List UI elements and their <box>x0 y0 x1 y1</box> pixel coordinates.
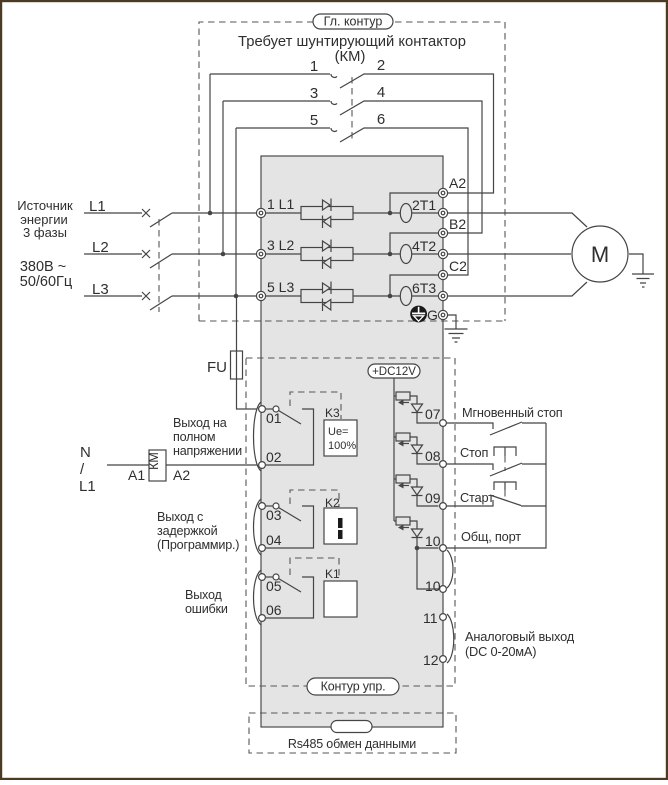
svg-text:2T1: 2T1 <box>412 197 436 213</box>
svg-text:2: 2 <box>377 57 385 74</box>
svg-text:Стоп: Стоп <box>460 445 488 460</box>
svg-text:3: 3 <box>310 85 318 102</box>
svg-text:напряжении: напряжении <box>173 444 242 458</box>
svg-text:Гл. контур: Гл. контур <box>324 15 383 29</box>
svg-text:09: 09 <box>425 490 441 506</box>
svg-text:Требует шунтирующий контактор: Требует шунтирующий контактор <box>238 34 466 50</box>
svg-text:+DC12V: +DC12V <box>372 366 416 378</box>
svg-text:02: 02 <box>266 449 282 465</box>
svg-text:Старт: Старт <box>460 490 494 505</box>
svg-text:(КМ): (КМ) <box>335 49 366 65</box>
svg-text:3 фазы: 3 фазы <box>23 225 67 240</box>
svg-text:Общ, порт: Общ, порт <box>461 529 521 544</box>
svg-text:K1: K1 <box>325 567 340 581</box>
svg-text:Выход: Выход <box>185 588 223 602</box>
svg-text:G: G <box>427 307 438 323</box>
svg-text:Аналоговый выход: Аналоговый выход <box>465 629 575 644</box>
svg-text:ошибки: ошибки <box>185 602 228 616</box>
svg-text:(Программир.): (Программир.) <box>157 538 239 552</box>
svg-text:08: 08 <box>425 448 441 464</box>
svg-text:100%: 100% <box>328 440 356 452</box>
svg-text:Rs485 обмен данными: Rs485 обмен данными <box>288 737 416 751</box>
svg-text:1: 1 <box>310 58 318 75</box>
svg-text:M: M <box>591 242 609 267</box>
svg-text:10: 10 <box>425 578 441 594</box>
svg-text:380В ~: 380В ~ <box>20 259 66 275</box>
svg-text:10: 10 <box>425 533 441 549</box>
svg-text:07: 07 <box>425 406 441 422</box>
svg-text:Контур упр.: Контур упр. <box>321 680 386 694</box>
svg-text:B2: B2 <box>449 216 466 232</box>
svg-text:11: 11 <box>423 610 438 626</box>
svg-text:06: 06 <box>266 602 282 618</box>
svg-text:полном: полном <box>173 430 215 444</box>
svg-text:01: 01 <box>266 410 282 426</box>
svg-text:A1: A1 <box>128 467 145 483</box>
svg-text:3 L2: 3 L2 <box>267 237 294 253</box>
svg-text:6: 6 <box>377 111 385 128</box>
svg-text:04: 04 <box>266 532 282 548</box>
svg-text:Выход с: Выход с <box>157 510 203 524</box>
svg-text:1 L1: 1 L1 <box>267 196 294 212</box>
svg-text:K3: K3 <box>325 406 340 420</box>
svg-text:50/60Гц: 50/60Гц <box>20 274 72 290</box>
svg-text:Ue=: Ue= <box>328 426 349 438</box>
svg-text:Мгновенный стоп: Мгновенный стоп <box>462 405 563 420</box>
svg-text:Выход на: Выход на <box>173 416 227 430</box>
svg-text:N: N <box>80 444 91 461</box>
svg-text:4: 4 <box>377 84 385 101</box>
svg-text:Источник: Источник <box>17 198 73 213</box>
svg-text:6T3: 6T3 <box>412 280 436 296</box>
svg-text:L1: L1 <box>79 478 96 495</box>
svg-text:12: 12 <box>423 652 439 668</box>
svg-text:C2: C2 <box>449 258 467 274</box>
svg-text:05: 05 <box>266 578 282 594</box>
svg-text:4T2: 4T2 <box>412 238 436 254</box>
svg-text:5 L3: 5 L3 <box>267 279 294 295</box>
svg-text:(DC 0-20мА): (DC 0-20мА) <box>465 644 536 659</box>
svg-text:A2: A2 <box>173 467 190 483</box>
svg-text:задержкой: задержкой <box>157 524 218 538</box>
svg-text:КМ: КМ <box>147 452 161 470</box>
svg-text:03: 03 <box>266 507 282 523</box>
svg-text:A2: A2 <box>449 175 466 191</box>
svg-text:5: 5 <box>310 112 318 129</box>
svg-text:FU: FU <box>207 359 227 376</box>
